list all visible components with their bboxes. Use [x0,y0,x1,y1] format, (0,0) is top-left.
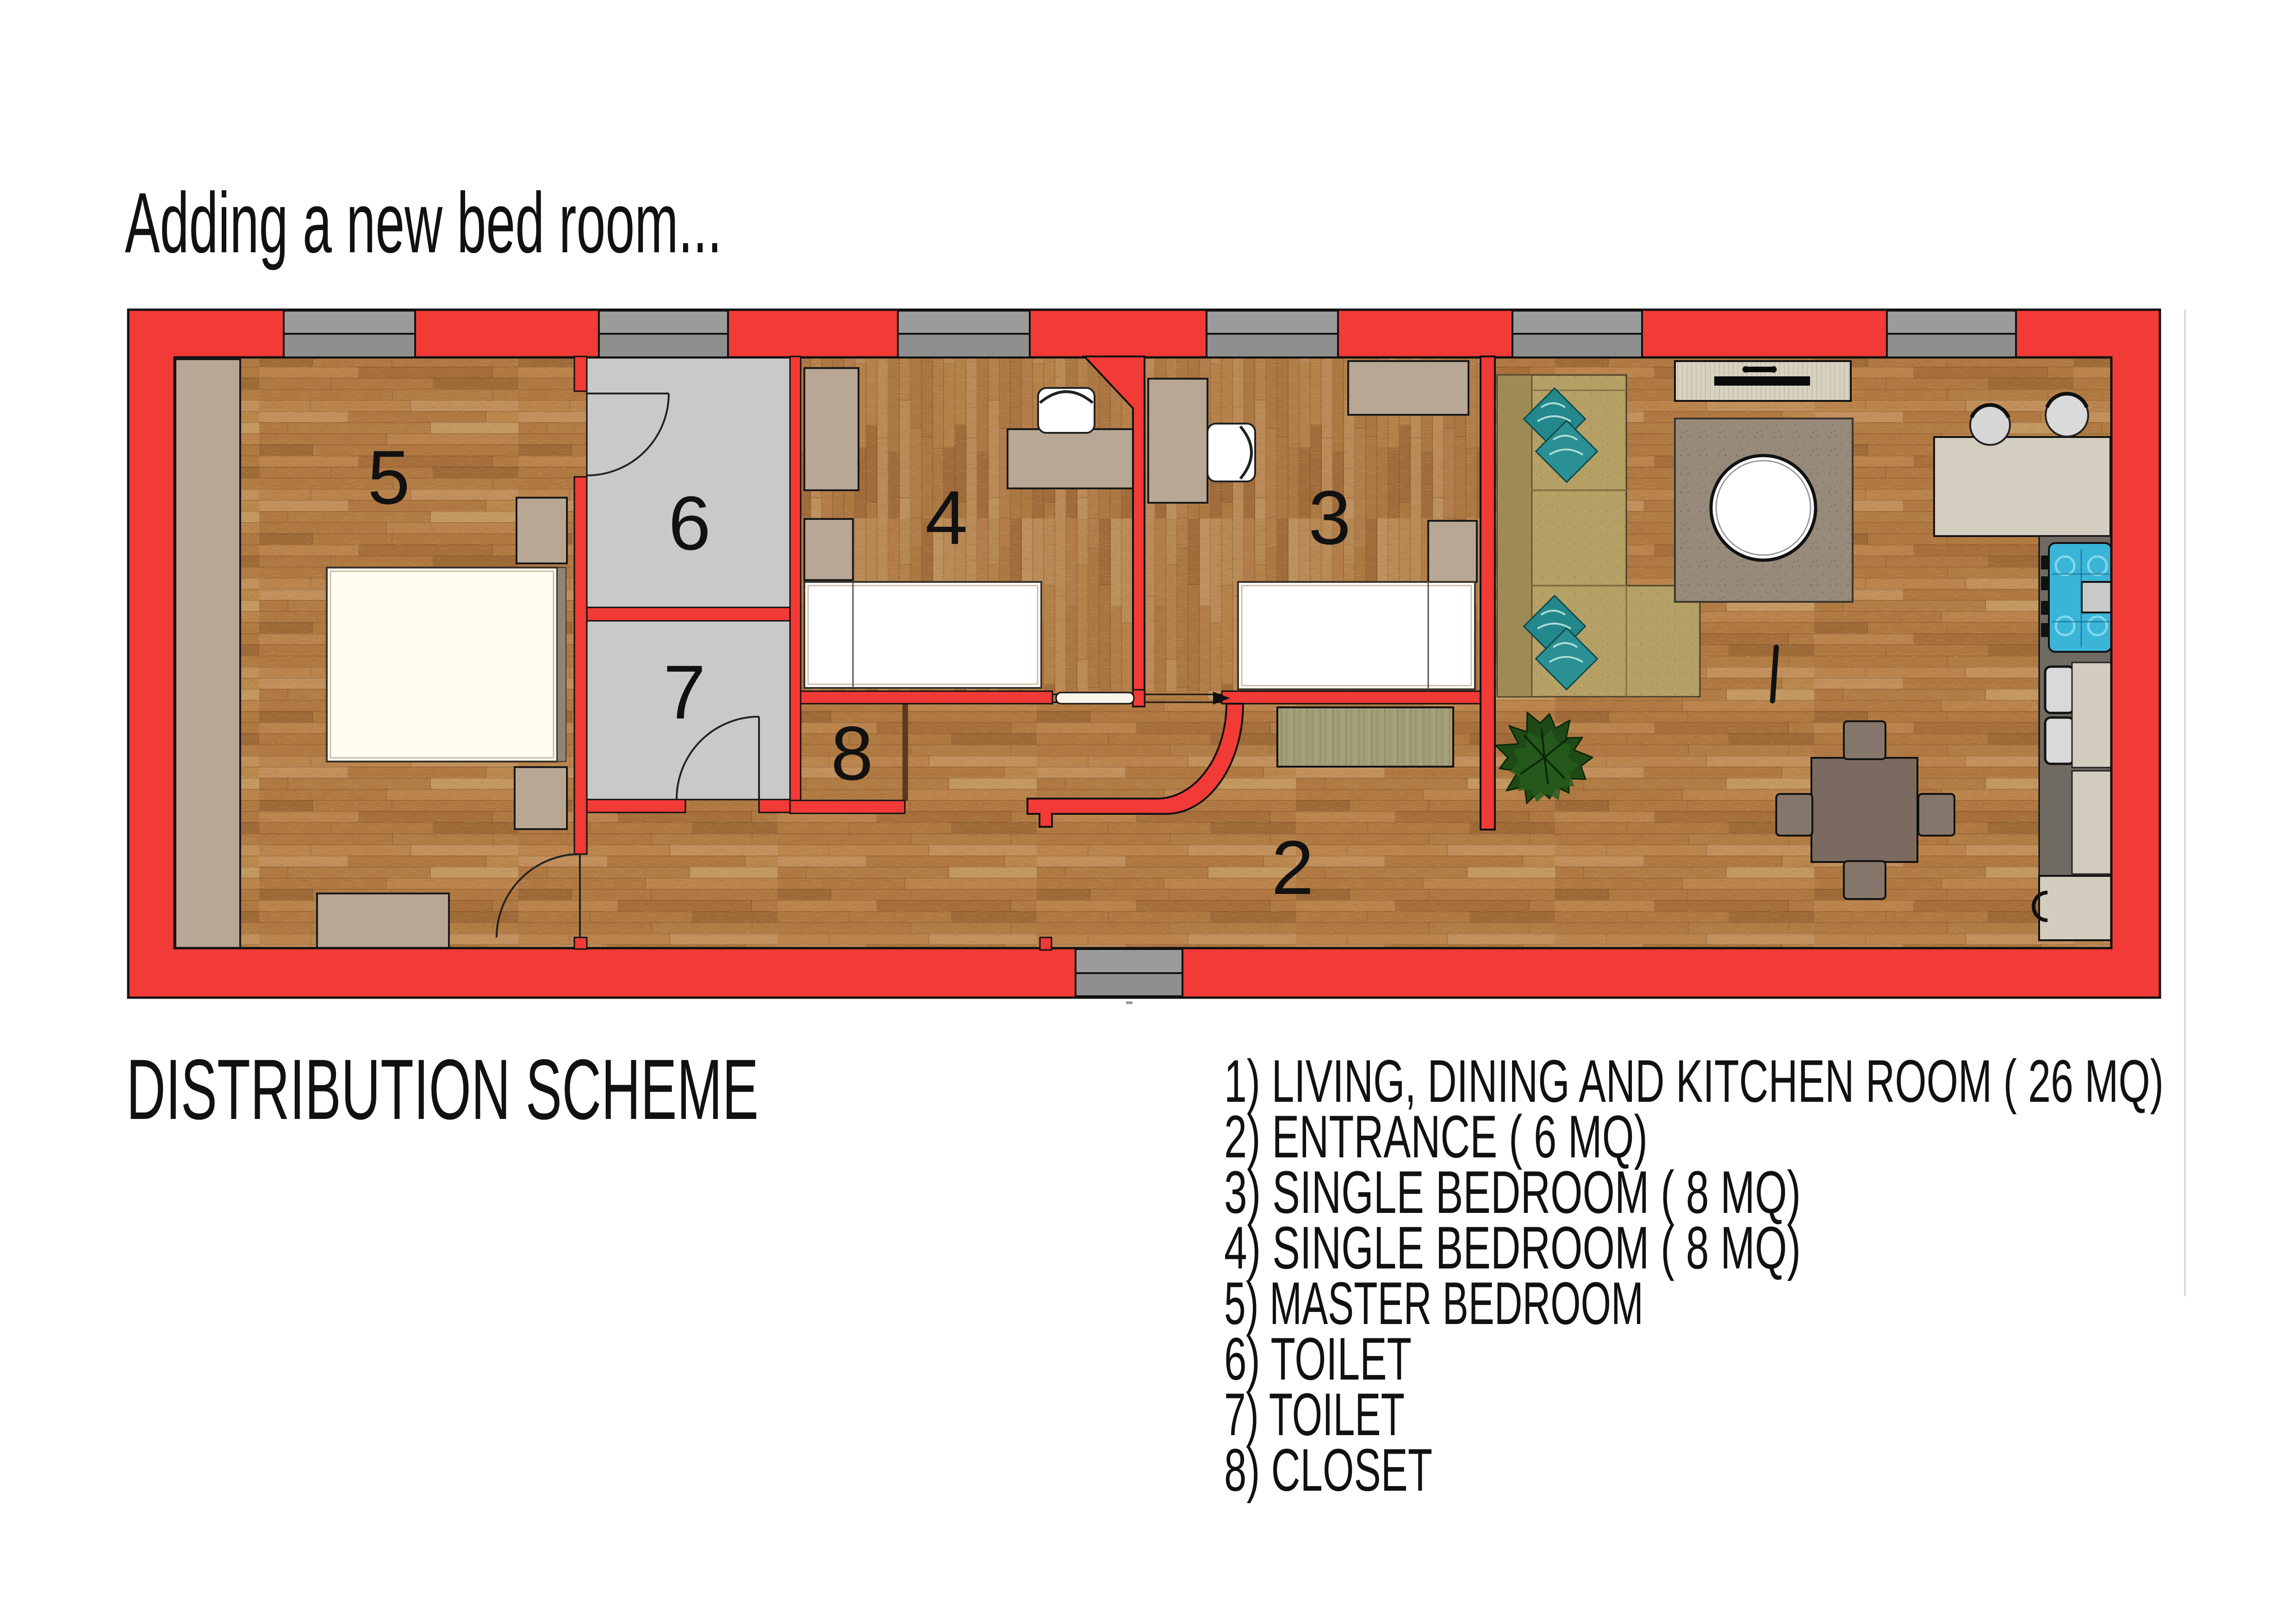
svg-text:7: 7 [663,650,706,735]
svg-text:8) CLOSET: 8) CLOSET [1224,1436,1432,1504]
svg-text:4: 4 [925,475,968,560]
svg-text:5: 5 [367,435,410,520]
svg-text:8: 8 [831,711,873,796]
svg-text:DISTRIBUTION SCHEME: DISTRIBUTION SCHEME [126,1042,759,1137]
svg-text:Adding a new bed room...: Adding a new bed room... [125,175,722,271]
svg-text:3: 3 [1308,475,1351,560]
svg-text:6: 6 [668,481,711,566]
svg-text:2: 2 [1271,825,1314,910]
